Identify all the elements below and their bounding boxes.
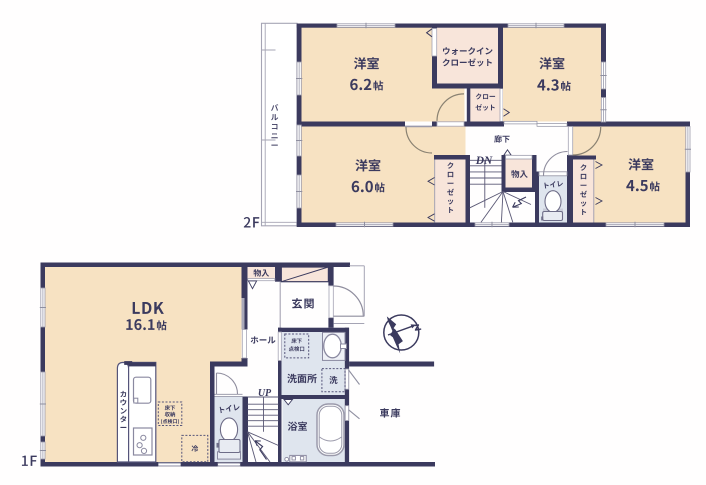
svg-text:UP: UP [258,388,272,399]
svg-text:DN: DN [475,155,493,167]
